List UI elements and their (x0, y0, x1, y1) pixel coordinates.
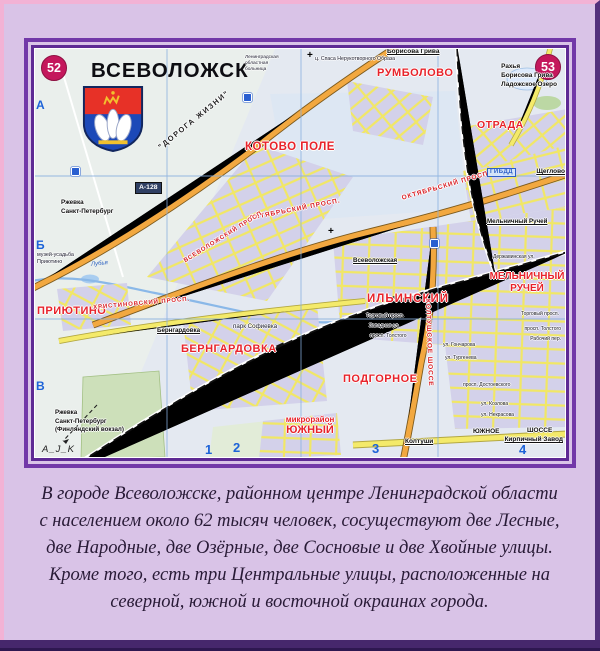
direction-rzhevka: Ржевка (61, 199, 113, 208)
direction-label-koltushi: Колтуши (405, 438, 433, 445)
page-number-badge-left: 52 (41, 55, 67, 81)
district-label-melnichny-line2: РУЧЕЙ (489, 283, 565, 295)
street-label-torgovy-2: Торговый просп. (521, 312, 559, 318)
direction-label-scheglovo: Щеглово (536, 168, 565, 175)
caption-line: В городе Всеволожске, районном центре Ле… (4, 481, 595, 508)
gibdd-box: ГИБДД (487, 168, 516, 177)
street-label-tolstogo: просп. Толстого (370, 334, 407, 340)
street-label-nekrasova: ул. Некрасова (481, 413, 514, 419)
district-label-kotovo-pole: КОТОВО ПОЛЕ (245, 141, 335, 154)
district-label-melnichny-ruchey: МЕЛЬНИЧНЫЙ РУЧЕЙ (489, 271, 565, 294)
caption-line: с населением около 62 тысяч человек, сос… (4, 508, 595, 535)
coat-of-arms (81, 85, 145, 153)
district-label-podgornoe: ПОДГОРНОЕ (343, 373, 417, 386)
caption-line: северной, южной и восточной окраинах гор… (4, 589, 595, 616)
grid-column-2: 2 (233, 441, 240, 456)
station-label-berngardovka: Бернгардовка (157, 327, 200, 334)
road-label-yuzhnoe: ЮЖНОЕ (473, 428, 500, 435)
station-label-melnichny-ruchey: Мельничный Ручей (487, 218, 547, 225)
street-label-zapadnaya: Западная ул. (369, 324, 400, 330)
direction-ladozhskoe-ozero: Ладожское Озеро (501, 81, 557, 90)
grid-column-4: 4 (519, 443, 526, 457)
district-label-berngardovka: БЕРНГАРДОВКА (181, 343, 277, 356)
poi-label-park-sofievka: парк Софиевка (233, 323, 277, 330)
street-label-kozlova: ул. Козлова (481, 402, 508, 408)
info-icon (243, 93, 252, 102)
street-label-tolstogo-2: просп. Толстого (524, 327, 561, 333)
direction-label-rakhya-block: Рахья Борисова Грива Ладожское Озеро (501, 63, 557, 90)
road-number-badge-a128: А-128 (135, 182, 162, 194)
poi-museum-line2: Приютино (37, 259, 74, 266)
poi-hospital-line3: больница (245, 67, 279, 73)
poi-label-museum-priyutino: музей-усадьба Приютино (37, 252, 74, 266)
info-icon-2 (430, 239, 439, 248)
district-label-yuzhny: микрорайон ЮЖНЫЙ (275, 415, 345, 437)
street-label-torgovy: Торговый просп. (366, 314, 404, 320)
station-label-vsevolozhskaya: Всеволожская (353, 257, 397, 264)
info-icon-3 (71, 167, 80, 176)
map-frame-inner: 52 53 ВСЕВОЛОЖСК КОТОВО ПОЛЕ РУМБОЛОВО О… (31, 45, 569, 461)
direction-finlyandsky: (Финляндский вокзал) (55, 426, 124, 435)
district-label-rumbolovo: РУМБОЛОВО (377, 67, 453, 80)
street-label-dostoevskogo: просп. Достоевского (463, 383, 510, 389)
city-map: 52 53 ВСЕВОЛОЖСК КОТОВО ПОЛЕ РУМБОЛОВО О… (35, 49, 565, 457)
district-label-ilyinsky: ИЛЬИНСКИЙ (367, 293, 449, 306)
direction-rzhevka-2: Ржевка (55, 409, 124, 418)
street-label-turgeneva: ул. Тургенева (445, 356, 477, 362)
map-frame: 52 53 ВСЕВОЛОЖСК КОТОВО ПОЛЕ РУМБОЛОВО О… (24, 38, 576, 468)
watermark: A_J_K (42, 445, 75, 456)
district-label-yuzhny-line1: микрорайон (275, 415, 345, 424)
caption-line: Кроме того, есть три Центральные улицы, … (4, 562, 595, 589)
grid-column-1: 1 (205, 443, 212, 457)
street-label-rabochy: Рабочий пер. (530, 337, 561, 343)
map-title: ВСЕВОЛОЖСК (91, 59, 249, 83)
church-cross-icon: + (307, 51, 313, 61)
direction-rakhya: Рахья (501, 63, 557, 72)
grid-row-b: Б (36, 239, 45, 253)
church-cross-icon-2: + (328, 227, 334, 237)
street-label-goncharova: ул. Гончарова (443, 343, 475, 349)
direction-borisova-griva-2: Борисова Грива (501, 72, 557, 81)
direction-label-rzhevka-west: Ржевка Санкт-Петербург (61, 199, 113, 217)
direction-label-borisova-griva: Борисова Грива (387, 49, 439, 55)
grid-row-v: В (36, 380, 45, 394)
direction-label-kirpichny-zavod: Кирпичный Завод (504, 436, 563, 443)
poi-museum-line1: музей-усадьба (37, 252, 74, 259)
caption-line: две Народные, две Озёрные, две Сосновые … (4, 535, 595, 562)
direction-spb: Санкт-Петербург (61, 208, 113, 217)
caption: В городе Всеволожске, районном центре Ле… (4, 481, 595, 616)
street-label-derzhavinskaya: Державинская ул. (493, 255, 535, 261)
direction-label-rzhevka-south: Ржевка Санкт-Петербург (Финляндский вокз… (55, 409, 124, 435)
bottom-border-band (0, 640, 600, 651)
district-label-otrada: ОТРАДА (477, 119, 524, 131)
grid-column-3: 3 (372, 442, 379, 457)
poi-label-church: ц. Спаса Нерукотворного Образа (315, 57, 395, 63)
district-label-yuzhny-line2: ЮЖНЫЙ (275, 424, 345, 437)
district-label-melnichny-line1: МЕЛЬНИЧНЫЙ (489, 271, 565, 283)
grid-row-a: А (36, 99, 45, 113)
road-label-shosse: ШОССЕ (527, 427, 552, 434)
poi-label-hospital: Ленинградская областная больница (245, 55, 279, 73)
